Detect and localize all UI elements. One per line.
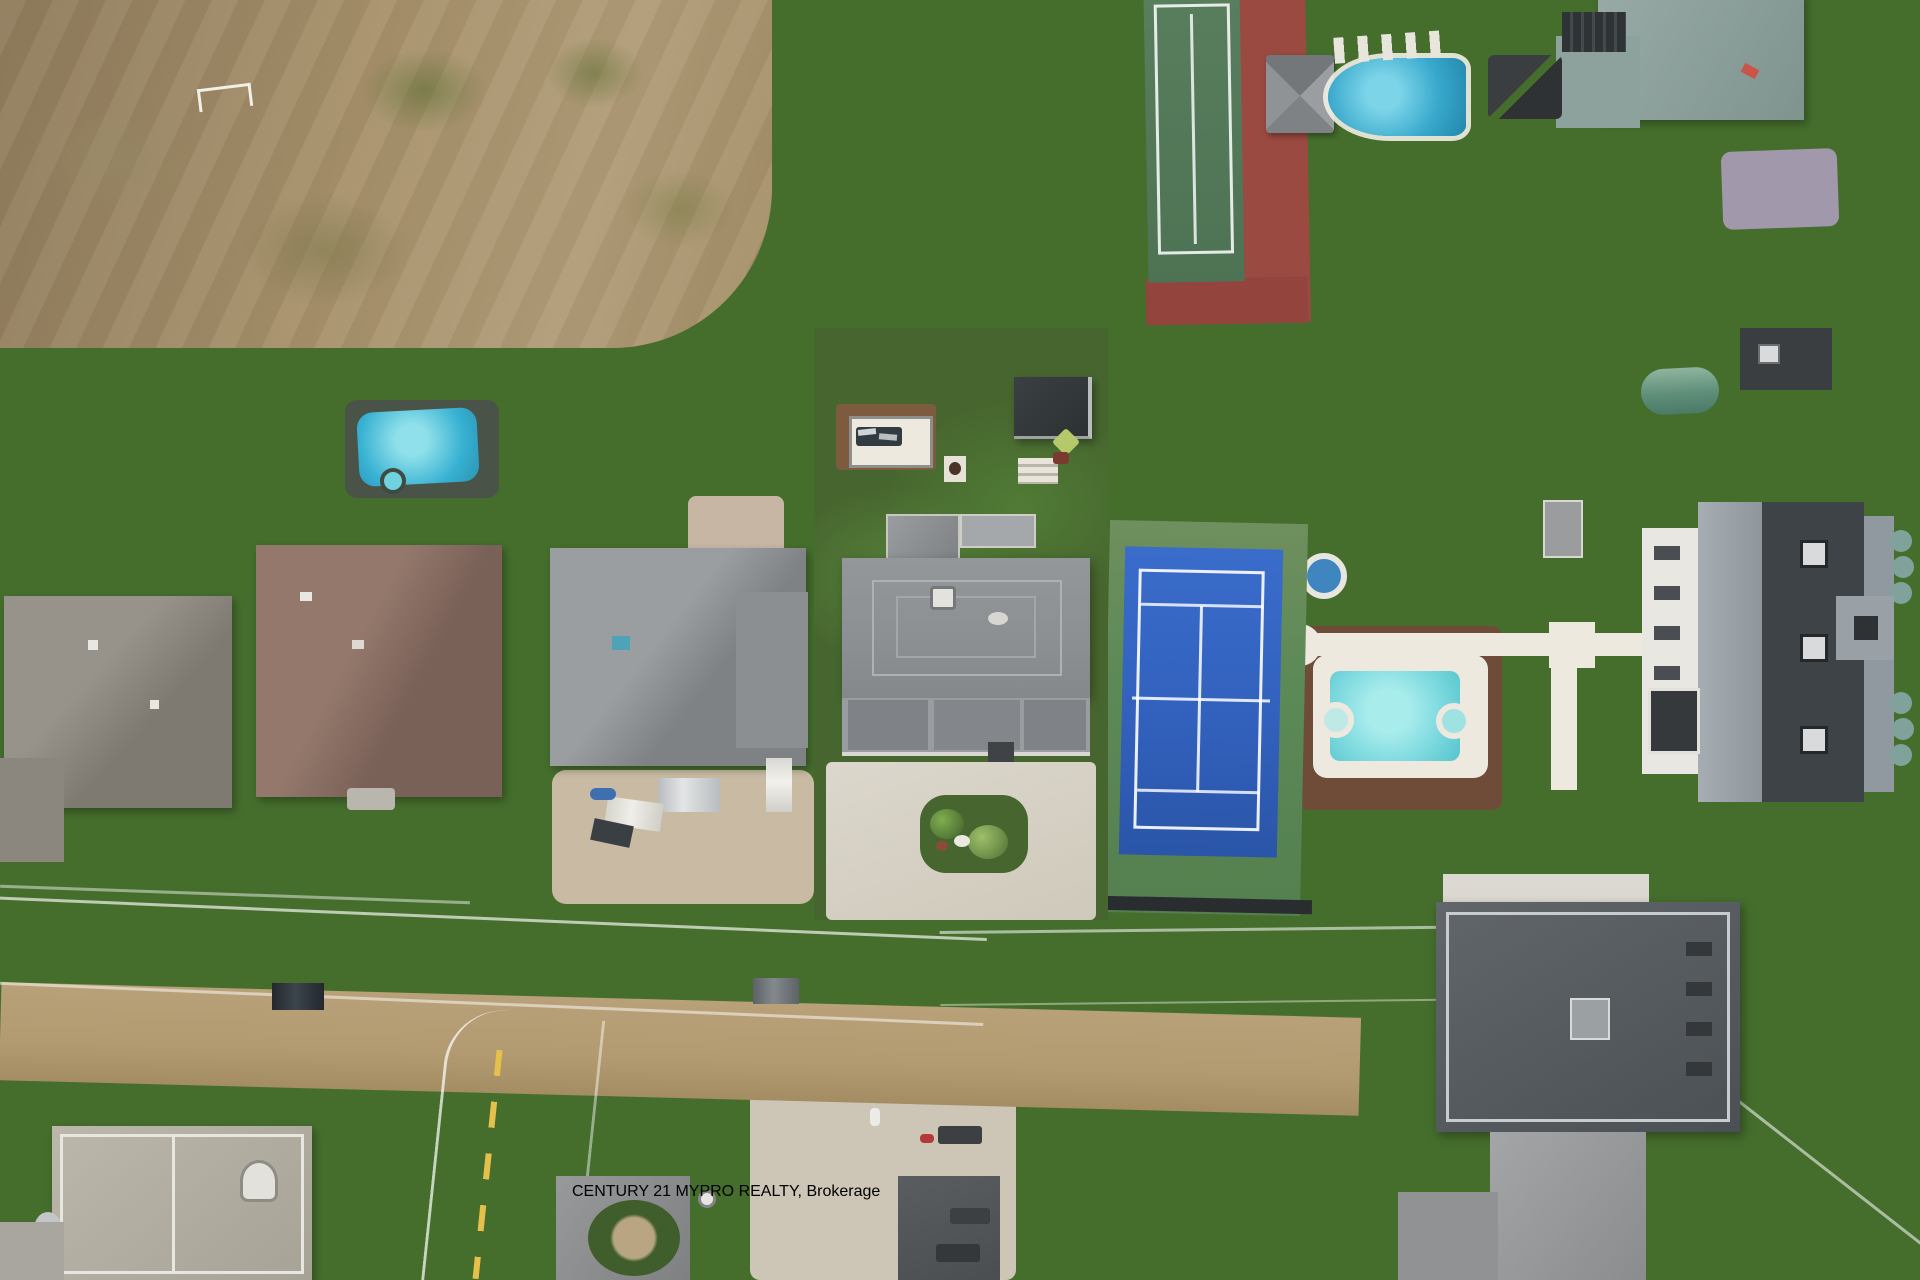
bottomright-modern-house — [1436, 902, 1740, 1132]
bottomright-second-house — [1490, 1132, 1646, 1280]
garden-shed-roof — [1543, 500, 1583, 558]
mansion-skylight1 — [1800, 540, 1828, 568]
pool-cabana — [1266, 55, 1334, 133]
bl-turret — [240, 1160, 278, 1202]
road-center-dashes — [473, 1050, 503, 1279]
estate-pool — [1328, 58, 1466, 136]
garden-spa-left — [1318, 702, 1354, 738]
bl-roof-divider — [172, 1134, 175, 1274]
br-vents — [1686, 942, 1712, 1092]
garden-lawn-right — [1490, 655, 1552, 777]
house1-wing — [0, 758, 64, 862]
house2-roof — [256, 545, 502, 797]
house3-bay-roof — [598, 512, 690, 560]
bl-parapet — [60, 1134, 304, 1274]
greenhouse-barrel-roof — [1640, 366, 1720, 416]
bc-bench3 — [936, 1244, 980, 1262]
house1-chimney — [88, 640, 98, 650]
mansion-garage-roof — [1740, 328, 1832, 390]
mansion-awning6 — [1890, 744, 1912, 766]
mansion-awning2 — [1892, 556, 1914, 578]
bc-dark-wing — [898, 1176, 1000, 1280]
bottomcenter-house-wing — [666, 1228, 824, 1280]
aerial-photo: CENTURY 21 MYPRO REALTY, Brokerage — [0, 0, 1920, 1280]
driveway-car-white-vertical — [766, 758, 792, 812]
house2-skylight — [300, 592, 312, 601]
mansion-awning4 — [1890, 692, 1912, 714]
mansion — [1640, 502, 1920, 802]
br-second-wing — [1398, 1192, 1498, 1280]
driveway-suv-silver — [658, 778, 720, 812]
bc-bench2 — [950, 1208, 990, 1224]
upper-purple-paving — [1721, 148, 1840, 230]
watermark: CENTURY 21 MYPRO REALTY, Brokerage — [572, 1183, 880, 1201]
green-tennis-court — [1143, 0, 1244, 283]
mansion-roof-west-slope — [1698, 502, 1762, 802]
mansion-garage-skylight — [1758, 344, 1780, 364]
house3-rear-wing — [736, 592, 808, 748]
neighbour-hot-tub — [380, 468, 406, 494]
garden-fountain — [1301, 553, 1347, 599]
house2-skylight2 — [352, 640, 364, 649]
patio-furniture-set — [1488, 55, 1562, 119]
estate-solar-panels — [1562, 12, 1626, 52]
garden-walk-vertical — [1551, 652, 1577, 790]
house2-portico — [347, 788, 395, 810]
parked-car-street — [753, 978, 799, 1004]
mansion-awning5 — [1892, 718, 1914, 740]
street-east — [940, 925, 1521, 1006]
parked-car-intersection — [272, 983, 324, 1010]
bottomleft-corner-roof — [0, 1222, 64, 1280]
house1-vent — [150, 700, 159, 709]
mansion-skylight3 — [1800, 726, 1828, 754]
blue-tennis-court — [1119, 546, 1283, 857]
br-skylight — [1570, 998, 1610, 1040]
blue-kayak — [590, 788, 616, 800]
bc-bench1 — [938, 1126, 982, 1144]
neighbour-pool — [356, 407, 480, 487]
mansion-skylight2 — [1800, 634, 1828, 662]
bottomleft-house-roof — [52, 1126, 312, 1280]
property-boundary-highlight — [814, 322, 1108, 920]
garden-spa-right — [1436, 703, 1472, 739]
bc-red-flowers — [920, 1134, 934, 1143]
mansion-awning1 — [1890, 530, 1912, 552]
bc-statue — [870, 1108, 880, 1126]
house3-skylight-teal — [612, 636, 630, 650]
mansion-turret — [1836, 596, 1894, 660]
dried-grass-field — [0, 0, 772, 348]
green-court-red-base — [1146, 277, 1309, 326]
bc-garden-circle — [588, 1200, 680, 1276]
mansion-portico — [1648, 688, 1700, 754]
turret-window — [1854, 616, 1878, 640]
